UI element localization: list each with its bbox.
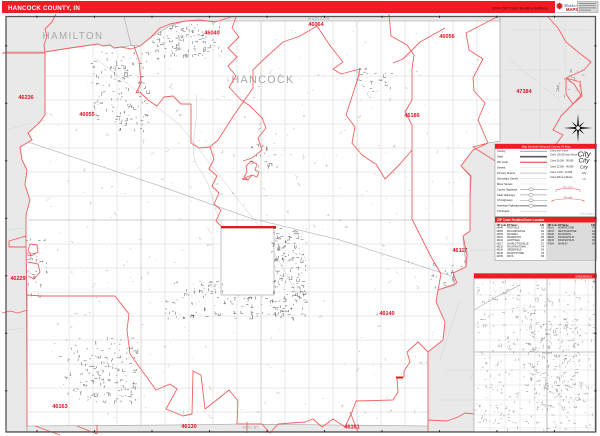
svg-text:ZIP Code: ZIP Code	[497, 160, 508, 164]
svg-text:MCCORDSVILLE: MCCORDSVILLE	[507, 231, 526, 233]
svg-text:46055: 46055	[79, 112, 94, 118]
svg-text:46155: 46155	[497, 256, 504, 258]
svg-text:2024 ZIP Code Redline Edition: 2024 ZIP Code Redline Edition	[492, 5, 549, 10]
svg-text:SHELBY: SHELBY	[243, 426, 260, 430]
svg-text:46117: 46117	[497, 243, 504, 245]
svg-text:INDIANAPOLIS: INDIANAPOLIS	[558, 236, 575, 239]
svg-text:FOUNTAINTOWN: FOUNTAINTOWN	[507, 246, 526, 249]
svg-text:MAYS: MAYS	[507, 255, 514, 258]
svg-text:Cities 1,000 - 24,999: Cities 1,000 - 24,999	[550, 171, 573, 174]
svg-text:FORTVILLE: FORTVILLE	[507, 228, 520, 230]
svg-text:46140: 46140	[497, 250, 504, 252]
svg-text:47384: 47384	[516, 89, 532, 95]
svg-text:46236: 46236	[548, 240, 555, 242]
svg-text:46236: 46236	[18, 95, 33, 101]
svg-text:Cities and Towns: Cities and Towns	[550, 150, 569, 153]
svg-text:46056: 46056	[439, 34, 454, 40]
svg-text:Cities 25,000 - 49,999: Cities 25,000 - 49,999	[550, 166, 574, 169]
svg-text:Minor Streets: Minor Streets	[497, 182, 513, 186]
svg-text:46163: 46163	[548, 231, 555, 233]
svg-text:46117: 46117	[453, 248, 468, 254]
svg-text:46040: 46040	[204, 31, 219, 37]
svg-text:46163: 46163	[52, 404, 67, 410]
svg-text:46040: 46040	[497, 228, 504, 230]
svg-text:County Highways: County Highways	[497, 187, 518, 191]
svg-text:Greenfield: Greenfield	[542, 352, 553, 355]
svg-text:HAMILTON: HAMILTON	[43, 31, 104, 42]
svg-text:GREENFIELD: GREENFIELD	[575, 275, 592, 279]
svg-text:State: State	[497, 155, 504, 159]
svg-text:MAXWELL: MAXWELL	[507, 233, 519, 236]
svg-text:47384: 47384	[548, 243, 555, 245]
svg-text:46161: 46161	[344, 425, 359, 431]
svg-text:INDIANAPOLIS: INDIANAPOLIS	[558, 239, 575, 242]
svg-text:46064: 46064	[497, 237, 504, 239]
svg-text:46130: 46130	[497, 247, 504, 249]
svg-text:Interstate Highways: Interstate Highways	[497, 204, 520, 208]
svg-text:46229: 46229	[548, 237, 555, 239]
svg-text:©MarketMAPS: ©MarketMAPS	[580, 213, 595, 216]
svg-text:MAPS: MAPS	[566, 7, 578, 12]
svg-text:Streets: Streets	[497, 166, 506, 170]
svg-text:State Highways: State Highways	[497, 193, 516, 197]
svg-text:MORRISTOWN: MORRISTOWN	[558, 228, 575, 230]
svg-text:HANCOCK COUNTY, IN: HANCOCK COUNTY, IN	[8, 5, 80, 12]
svg-text:46130: 46130	[181, 424, 196, 430]
svg-text:Area Code: Area Code	[563, 185, 573, 188]
svg-text:Map Symbols Hancock County, I: Map Symbols Hancock County, IN Map	[522, 145, 571, 149]
svg-text:46055: 46055	[497, 231, 504, 233]
svg-text:Cities 50,000 - 99,999: Cities 50,000 - 99,999	[550, 160, 574, 163]
svg-text:46104: 46104	[497, 240, 504, 242]
svg-text:WILKINSON: WILKINSON	[558, 234, 571, 236]
svg-text:Toll Roads: Toll Roads	[497, 209, 510, 213]
svg-text:GREENFIELD: GREENFIELD	[507, 250, 522, 252]
svg-text:NEW PALESTINE: NEW PALESTINE	[558, 230, 577, 233]
svg-text:46148: 46148	[497, 253, 504, 255]
svg-text:CARTHAGE: CARTHAGE	[507, 239, 520, 242]
svg-text:Cities 100,000 and Above: Cities 100,000 and Above	[550, 154, 578, 157]
svg-text:46161: 46161	[548, 228, 555, 230]
svg-text:US Highways: US Highways	[497, 198, 513, 202]
svg-text:46056: 46056	[497, 234, 504, 236]
svg-text:County: County	[497, 149, 506, 153]
svg-text:KNIGHTSTOWN: KNIGHTSTOWN	[507, 253, 525, 255]
svg-text:Secondary Streets: Secondary Streets	[497, 176, 519, 180]
svg-text:City: City	[579, 158, 591, 165]
svg-text:City: City	[582, 171, 587, 175]
svg-text:MADISON: MADISON	[308, 17, 330, 21]
svg-text:Primary Streets: Primary Streets	[497, 171, 516, 175]
svg-text:ZIP Code Redline/Zone Locator: ZIP Code Redline/Zone Locator	[497, 218, 545, 222]
svg-text:CHARLOTTESVILLE: CHARLOTTESVILLE	[507, 242, 529, 245]
svg-text:HANCOCK: HANCOCK	[231, 74, 294, 86]
svg-text:46186: 46186	[548, 234, 555, 236]
svg-text:46140: 46140	[379, 311, 394, 317]
svg-text:SHIRLEY: SHIRLEY	[558, 243, 568, 245]
svg-text:46064: 46064	[308, 22, 324, 28]
svg-text:46186: 46186	[404, 113, 419, 119]
svg-text:City: City	[580, 165, 589, 170]
svg-text:46229: 46229	[10, 276, 25, 282]
svg-text:PENDLETON: PENDLETON	[507, 237, 521, 239]
svg-text:Cities 999 and Below: Cities 999 and Below	[550, 176, 573, 179]
